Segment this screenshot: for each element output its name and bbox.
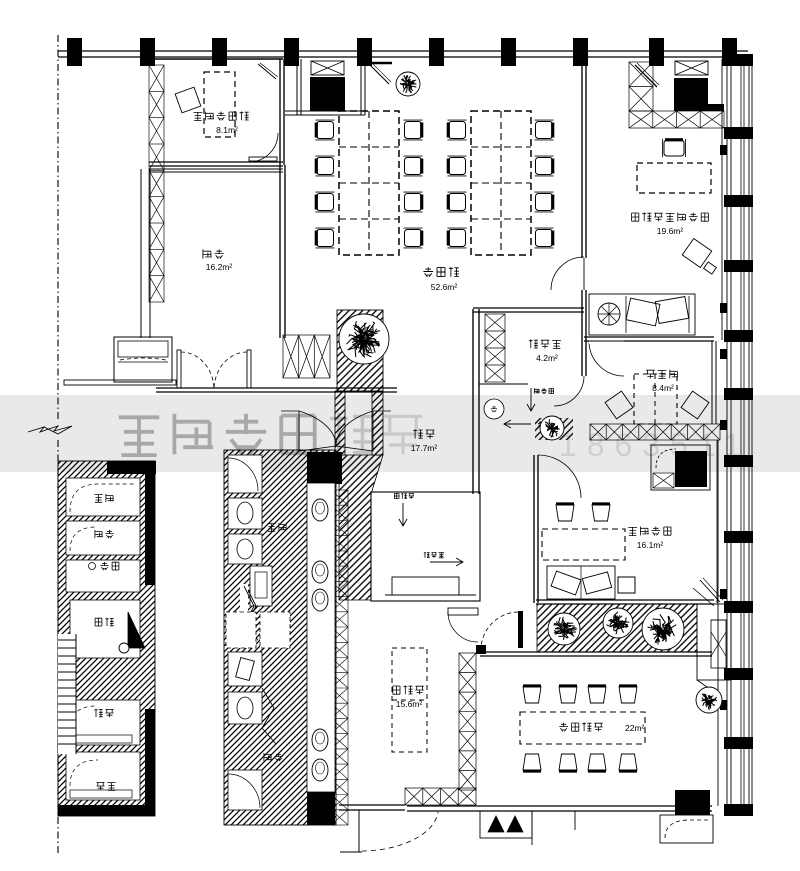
svg-text:8.1m²: 8.1m²: [216, 125, 238, 135]
svg-text:16.1m²: 16.1m²: [637, 540, 664, 550]
svg-text:17.7m²: 17.7m²: [411, 443, 438, 453]
svg-text:4.2m²: 4.2m²: [536, 353, 558, 363]
svg-text:16.2m²: 16.2m²: [206, 262, 233, 272]
svg-text:52.6m²: 52.6m²: [431, 282, 458, 292]
svg-text:22m²: 22m²: [625, 723, 645, 733]
svg-text:15.6m²: 15.6m²: [396, 699, 423, 709]
svg-text:19.6m²: 19.6m²: [657, 226, 684, 236]
